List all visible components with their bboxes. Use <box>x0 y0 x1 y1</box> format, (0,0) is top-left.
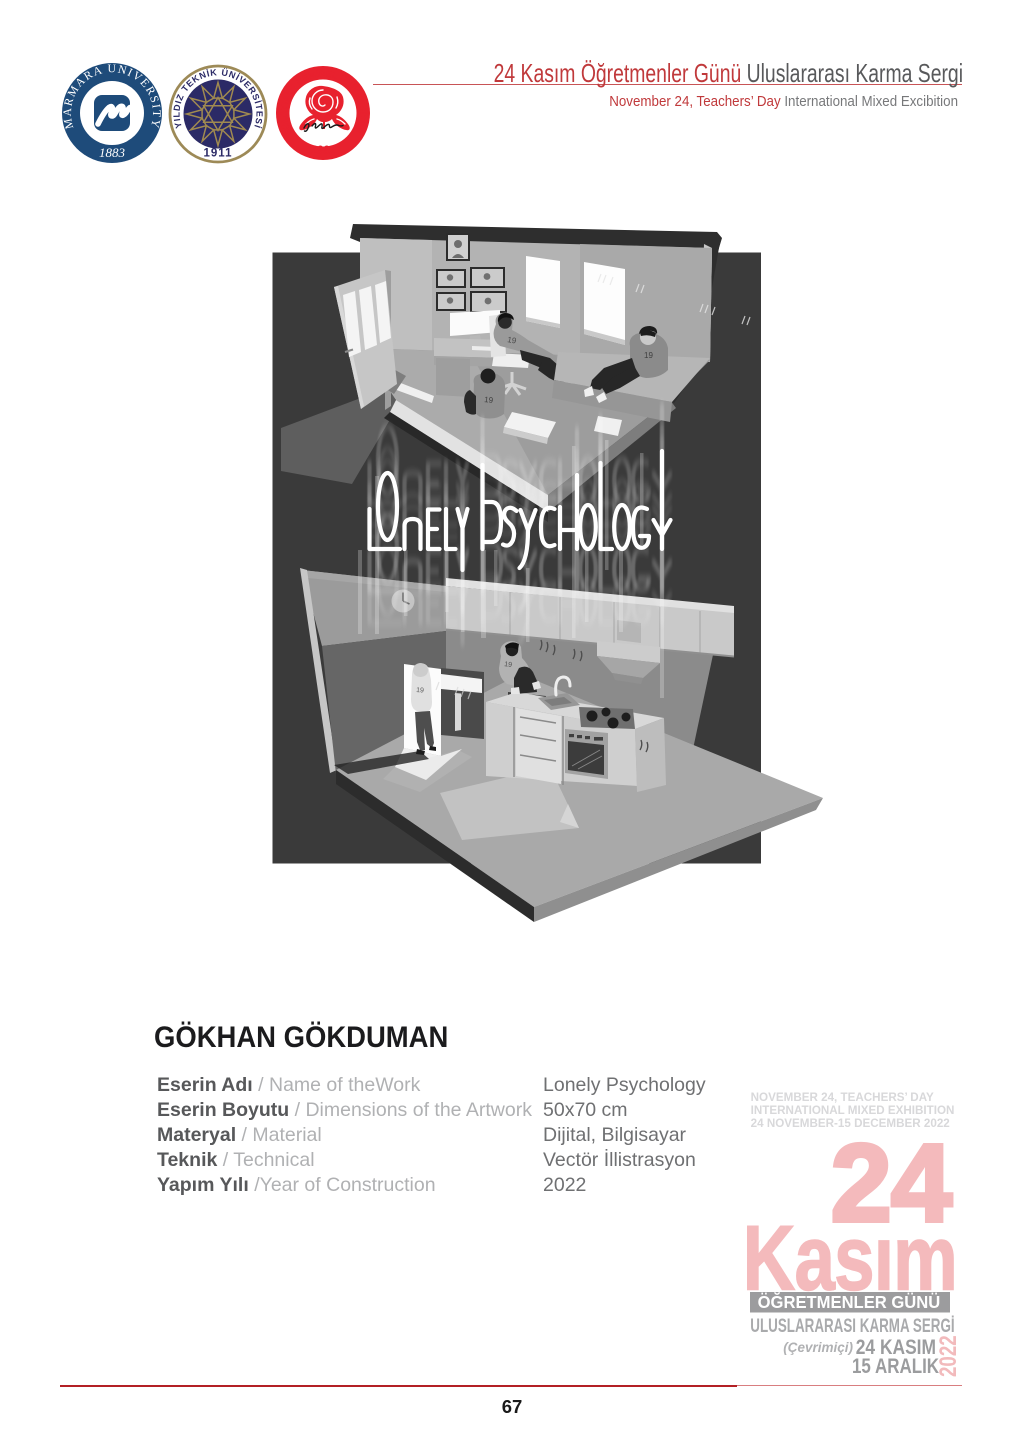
svg-text:(Çevrimiçi): (Çevrimiçi) <box>783 1340 853 1355</box>
svg-text:19: 19 <box>416 687 424 695</box>
svg-text:ÖĞRETMENLER GÜNÜ: ÖĞRETMENLER GÜNÜ <box>758 1293 941 1312</box>
svg-text:2022: 2022 <box>935 1335 962 1377</box>
svg-text:ULUSLARARASI KARMA SERGİ: ULUSLARARASI KARMA SERGİ <box>750 1316 954 1337</box>
svg-text:1883: 1883 <box>99 145 126 160</box>
svg-text:19: 19 <box>504 661 513 669</box>
svg-text:1911: 1911 <box>204 148 233 160</box>
svg-text:1992: 1992 <box>310 145 336 157</box>
svg-text:19: 19 <box>644 351 653 360</box>
svg-text:15 ARALIK: 15 ARALIK <box>852 1354 939 1378</box>
svg-text:19: 19 <box>484 395 494 405</box>
